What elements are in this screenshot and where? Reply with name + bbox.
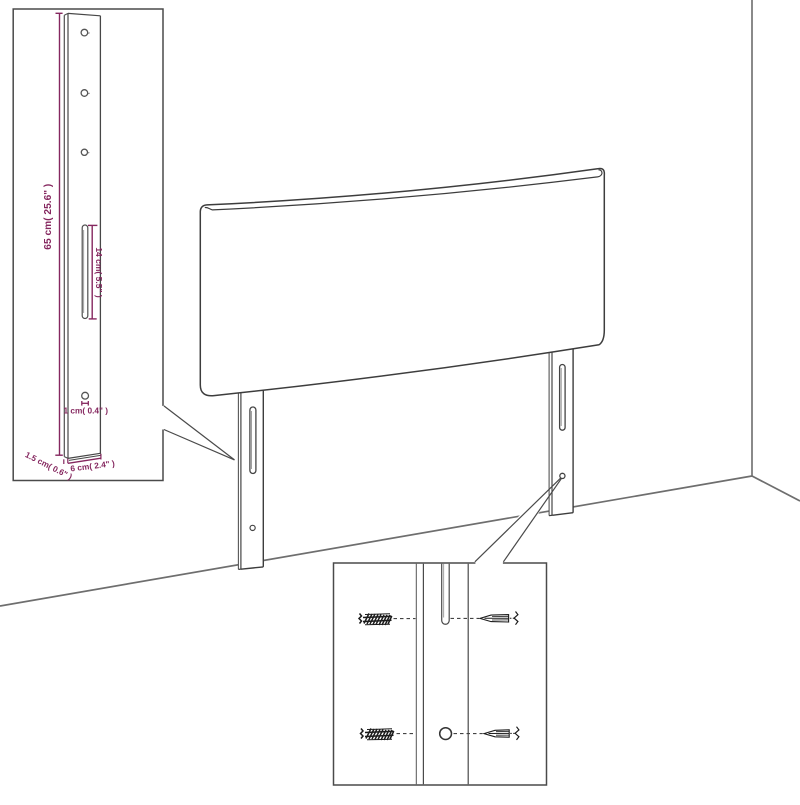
svg-text:1 cm( 0.4" ): 1 cm( 0.4" ) <box>64 406 109 416</box>
svg-text:65 cm( 25.6" ): 65 cm( 25.6" ) <box>43 184 54 250</box>
svg-text:14 cm( 5.5" ): 14 cm( 5.5" ) <box>94 247 104 298</box>
